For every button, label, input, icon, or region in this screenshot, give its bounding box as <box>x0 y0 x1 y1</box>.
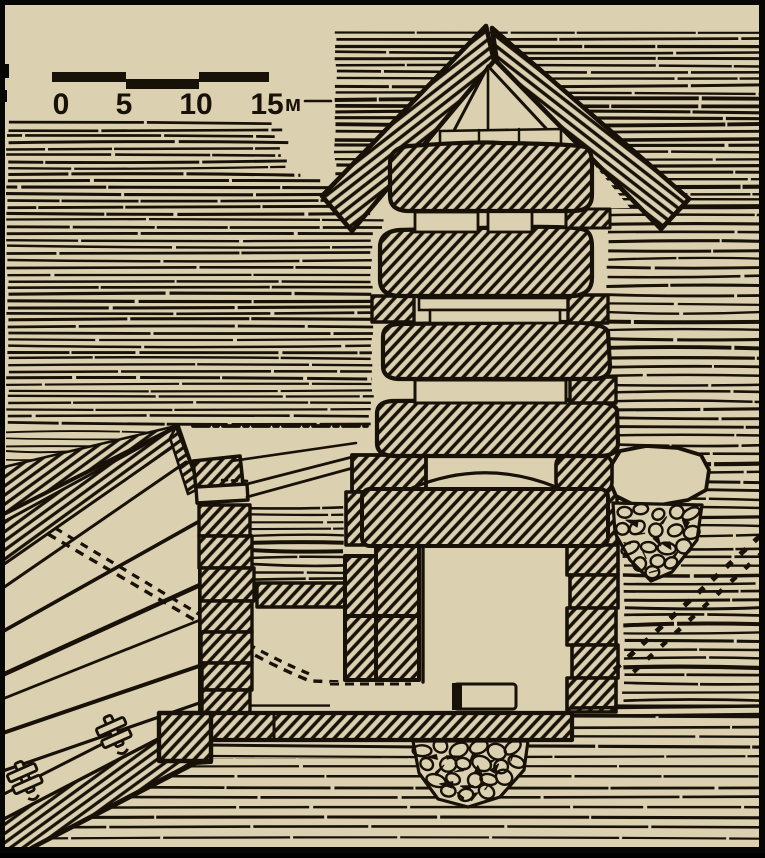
svg-text:5: 5 <box>116 88 133 121</box>
svg-text:10: 10 <box>179 88 212 121</box>
svg-text:15: 15 <box>250 88 283 121</box>
svg-text:м: м <box>285 91 301 116</box>
svg-text:0: 0 <box>53 88 70 121</box>
